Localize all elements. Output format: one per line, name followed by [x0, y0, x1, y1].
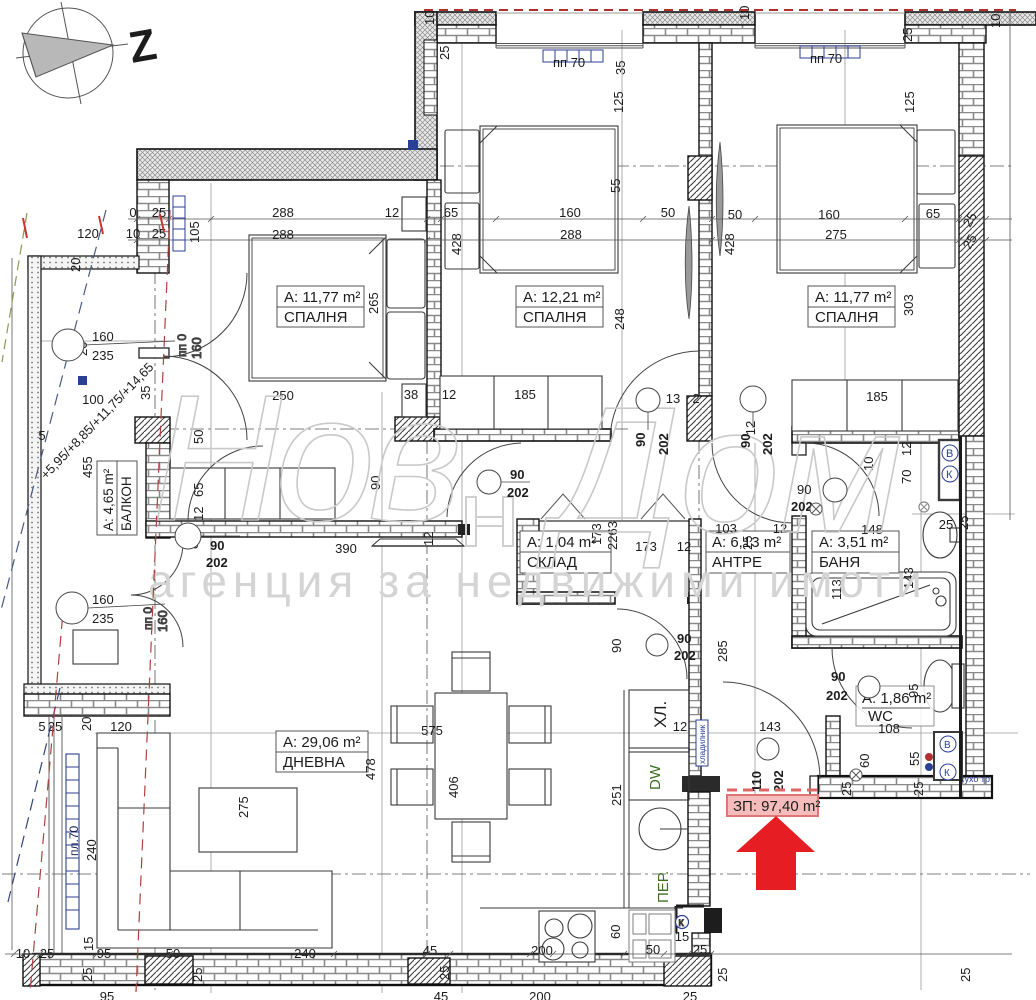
svg-text:15: 15	[81, 937, 96, 951]
svg-text:БАЛКОН: БАЛКОН	[119, 476, 134, 531]
svg-text:65: 65	[444, 205, 458, 220]
svg-text:50: 50	[728, 207, 742, 222]
svg-text:160: 160	[189, 337, 204, 359]
svg-text:0: 0	[129, 205, 136, 220]
svg-text:202: 202	[791, 499, 813, 514]
svg-text:275: 275	[236, 796, 251, 818]
svg-text:25: 25	[715, 968, 730, 982]
svg-text:пл.70: пл.70	[67, 825, 81, 856]
svg-text:А: 12,21 m²: А: 12,21 m²	[523, 289, 601, 306]
svg-text:160: 160	[818, 207, 840, 222]
svg-text:478: 478	[363, 758, 378, 780]
svg-text:200: 200	[529, 989, 551, 1000]
svg-text:95: 95	[97, 946, 111, 961]
svg-text:90: 90	[738, 434, 753, 448]
svg-text:202: 202	[674, 648, 696, 663]
svg-text:50: 50	[661, 205, 675, 220]
svg-text:55: 55	[907, 752, 922, 766]
svg-text:235: 235	[92, 611, 114, 626]
svg-text:20: 20	[79, 717, 94, 731]
svg-text:428: 428	[722, 233, 737, 255]
svg-text:95: 95	[906, 684, 921, 698]
svg-text:25: 25	[900, 28, 915, 42]
svg-text:90: 90	[831, 669, 845, 684]
svg-text:455: 455	[80, 456, 95, 478]
svg-text:202: 202	[206, 555, 228, 570]
svg-text:285: 285	[715, 640, 730, 662]
svg-text:25: 25	[437, 966, 452, 980]
svg-text:125: 125	[902, 91, 917, 113]
svg-text:25: 25	[683, 989, 697, 1000]
svg-text:202: 202	[507, 485, 529, 500]
svg-text:185: 185	[514, 387, 536, 402]
svg-text:235: 235	[92, 348, 114, 363]
svg-text:5: 5	[38, 428, 45, 443]
svg-text:СПАЛНЯ: СПАЛНЯ	[284, 309, 347, 326]
svg-text:ДНЕВНА: ДНЕВНА	[283, 754, 345, 771]
svg-text:35: 35	[138, 386, 153, 400]
svg-text:25: 25	[40, 946, 54, 961]
svg-text:В: В	[946, 448, 953, 460]
svg-text:45: 45	[434, 989, 448, 1000]
svg-text:90: 90	[677, 631, 691, 646]
svg-text:202: 202	[760, 433, 775, 455]
svg-text:Дом: Дом	[536, 370, 903, 571]
svg-text:120: 120	[77, 226, 99, 241]
svg-text:25: 25	[958, 968, 973, 982]
svg-text:пп 70: пп 70	[553, 55, 585, 70]
svg-text:СПАЛНЯ: СПАЛНЯ	[523, 309, 586, 326]
svg-text:К: К	[946, 469, 953, 481]
svg-text:20: 20	[68, 258, 83, 272]
svg-text:К: К	[944, 768, 950, 779]
svg-text:25: 25	[80, 968, 95, 982]
svg-text:240: 240	[84, 839, 99, 861]
svg-text:90: 90	[609, 639, 624, 653]
svg-text:90: 90	[210, 538, 224, 553]
svg-text:90: 90	[633, 433, 648, 447]
svg-text:160: 160	[559, 205, 581, 220]
svg-text:25: 25	[190, 968, 205, 982]
svg-text:агенция за недвижими имоти: агенция за недвижими имоти	[148, 555, 928, 607]
svg-text:DW: DW	[647, 764, 664, 790]
svg-text:10: 10	[422, 11, 437, 25]
svg-text:90: 90	[510, 467, 524, 482]
svg-text:25: 25	[693, 942, 707, 957]
svg-text:303: 303	[901, 294, 916, 316]
svg-text:А: 11,77 m²: А: 11,77 m²	[284, 289, 360, 306]
svg-text:К: К	[679, 918, 685, 928]
svg-text:95: 95	[100, 989, 114, 1000]
svg-text:406: 406	[446, 776, 461, 798]
svg-text:60: 60	[857, 754, 872, 768]
svg-text:А: 4,65 m²: А: 4,65 m²	[101, 468, 116, 531]
svg-text:55: 55	[608, 179, 623, 193]
svg-text:сухо тр.: сухо тр.	[960, 774, 993, 784]
svg-text:100: 100	[82, 392, 104, 407]
svg-text:25: 25	[152, 205, 166, 220]
svg-text:108: 108	[878, 721, 900, 736]
svg-text:ЗП: 97,40 m²: ЗП: 97,40 m²	[733, 798, 820, 815]
svg-text:90: 90	[797, 482, 811, 497]
svg-text:12: 12	[385, 205, 399, 220]
svg-text:143: 143	[759, 719, 781, 734]
svg-text:хладилник: хладилник	[698, 724, 707, 764]
svg-text:ХЛ.: ХЛ.	[651, 701, 670, 728]
svg-text:160: 160	[155, 610, 170, 632]
svg-text:10: 10	[737, 6, 752, 20]
svg-text:А: 11,77 m²: А: 11,77 m²	[815, 289, 891, 306]
svg-text:240: 240	[294, 946, 316, 961]
svg-text:160: 160	[92, 329, 114, 344]
svg-text:200: 200	[531, 943, 553, 958]
svg-text:288: 288	[272, 205, 294, 220]
svg-text:60: 60	[608, 925, 623, 939]
svg-text:202: 202	[656, 433, 671, 455]
svg-text:248: 248	[612, 308, 627, 330]
svg-text:А: 29,06 m²: А: 29,06 m²	[283, 734, 361, 751]
svg-text:25: 25	[839, 782, 854, 796]
svg-text:25: 25	[437, 46, 452, 60]
svg-text:5: 5	[38, 719, 45, 734]
svg-text:пп 70: пп 70	[810, 51, 842, 66]
svg-text:25: 25	[939, 517, 953, 532]
svg-text:50: 50	[646, 942, 660, 957]
svg-text:125: 125	[611, 91, 626, 113]
svg-text:120: 120	[110, 719, 132, 734]
svg-text:25: 25	[911, 782, 926, 796]
svg-text:25: 25	[956, 516, 971, 530]
svg-text:50: 50	[166, 946, 180, 961]
svg-text:265: 265	[366, 292, 381, 314]
svg-text:15: 15	[675, 929, 689, 944]
svg-text:251: 251	[609, 784, 624, 806]
svg-text:35: 35	[613, 61, 628, 75]
svg-text:СПАЛНЯ: СПАЛНЯ	[815, 309, 878, 326]
svg-text:10: 10	[988, 14, 1003, 28]
svg-text:160: 160	[92, 592, 114, 607]
svg-text:12: 12	[673, 719, 687, 734]
svg-text:ПЕР.: ПЕР.	[655, 871, 672, 903]
svg-text:В: В	[944, 740, 951, 751]
svg-text:202: 202	[826, 688, 848, 703]
svg-text:575: 575	[421, 723, 443, 738]
svg-text:428: 428	[449, 233, 464, 255]
svg-text:пп 0: пп 0	[175, 334, 189, 357]
